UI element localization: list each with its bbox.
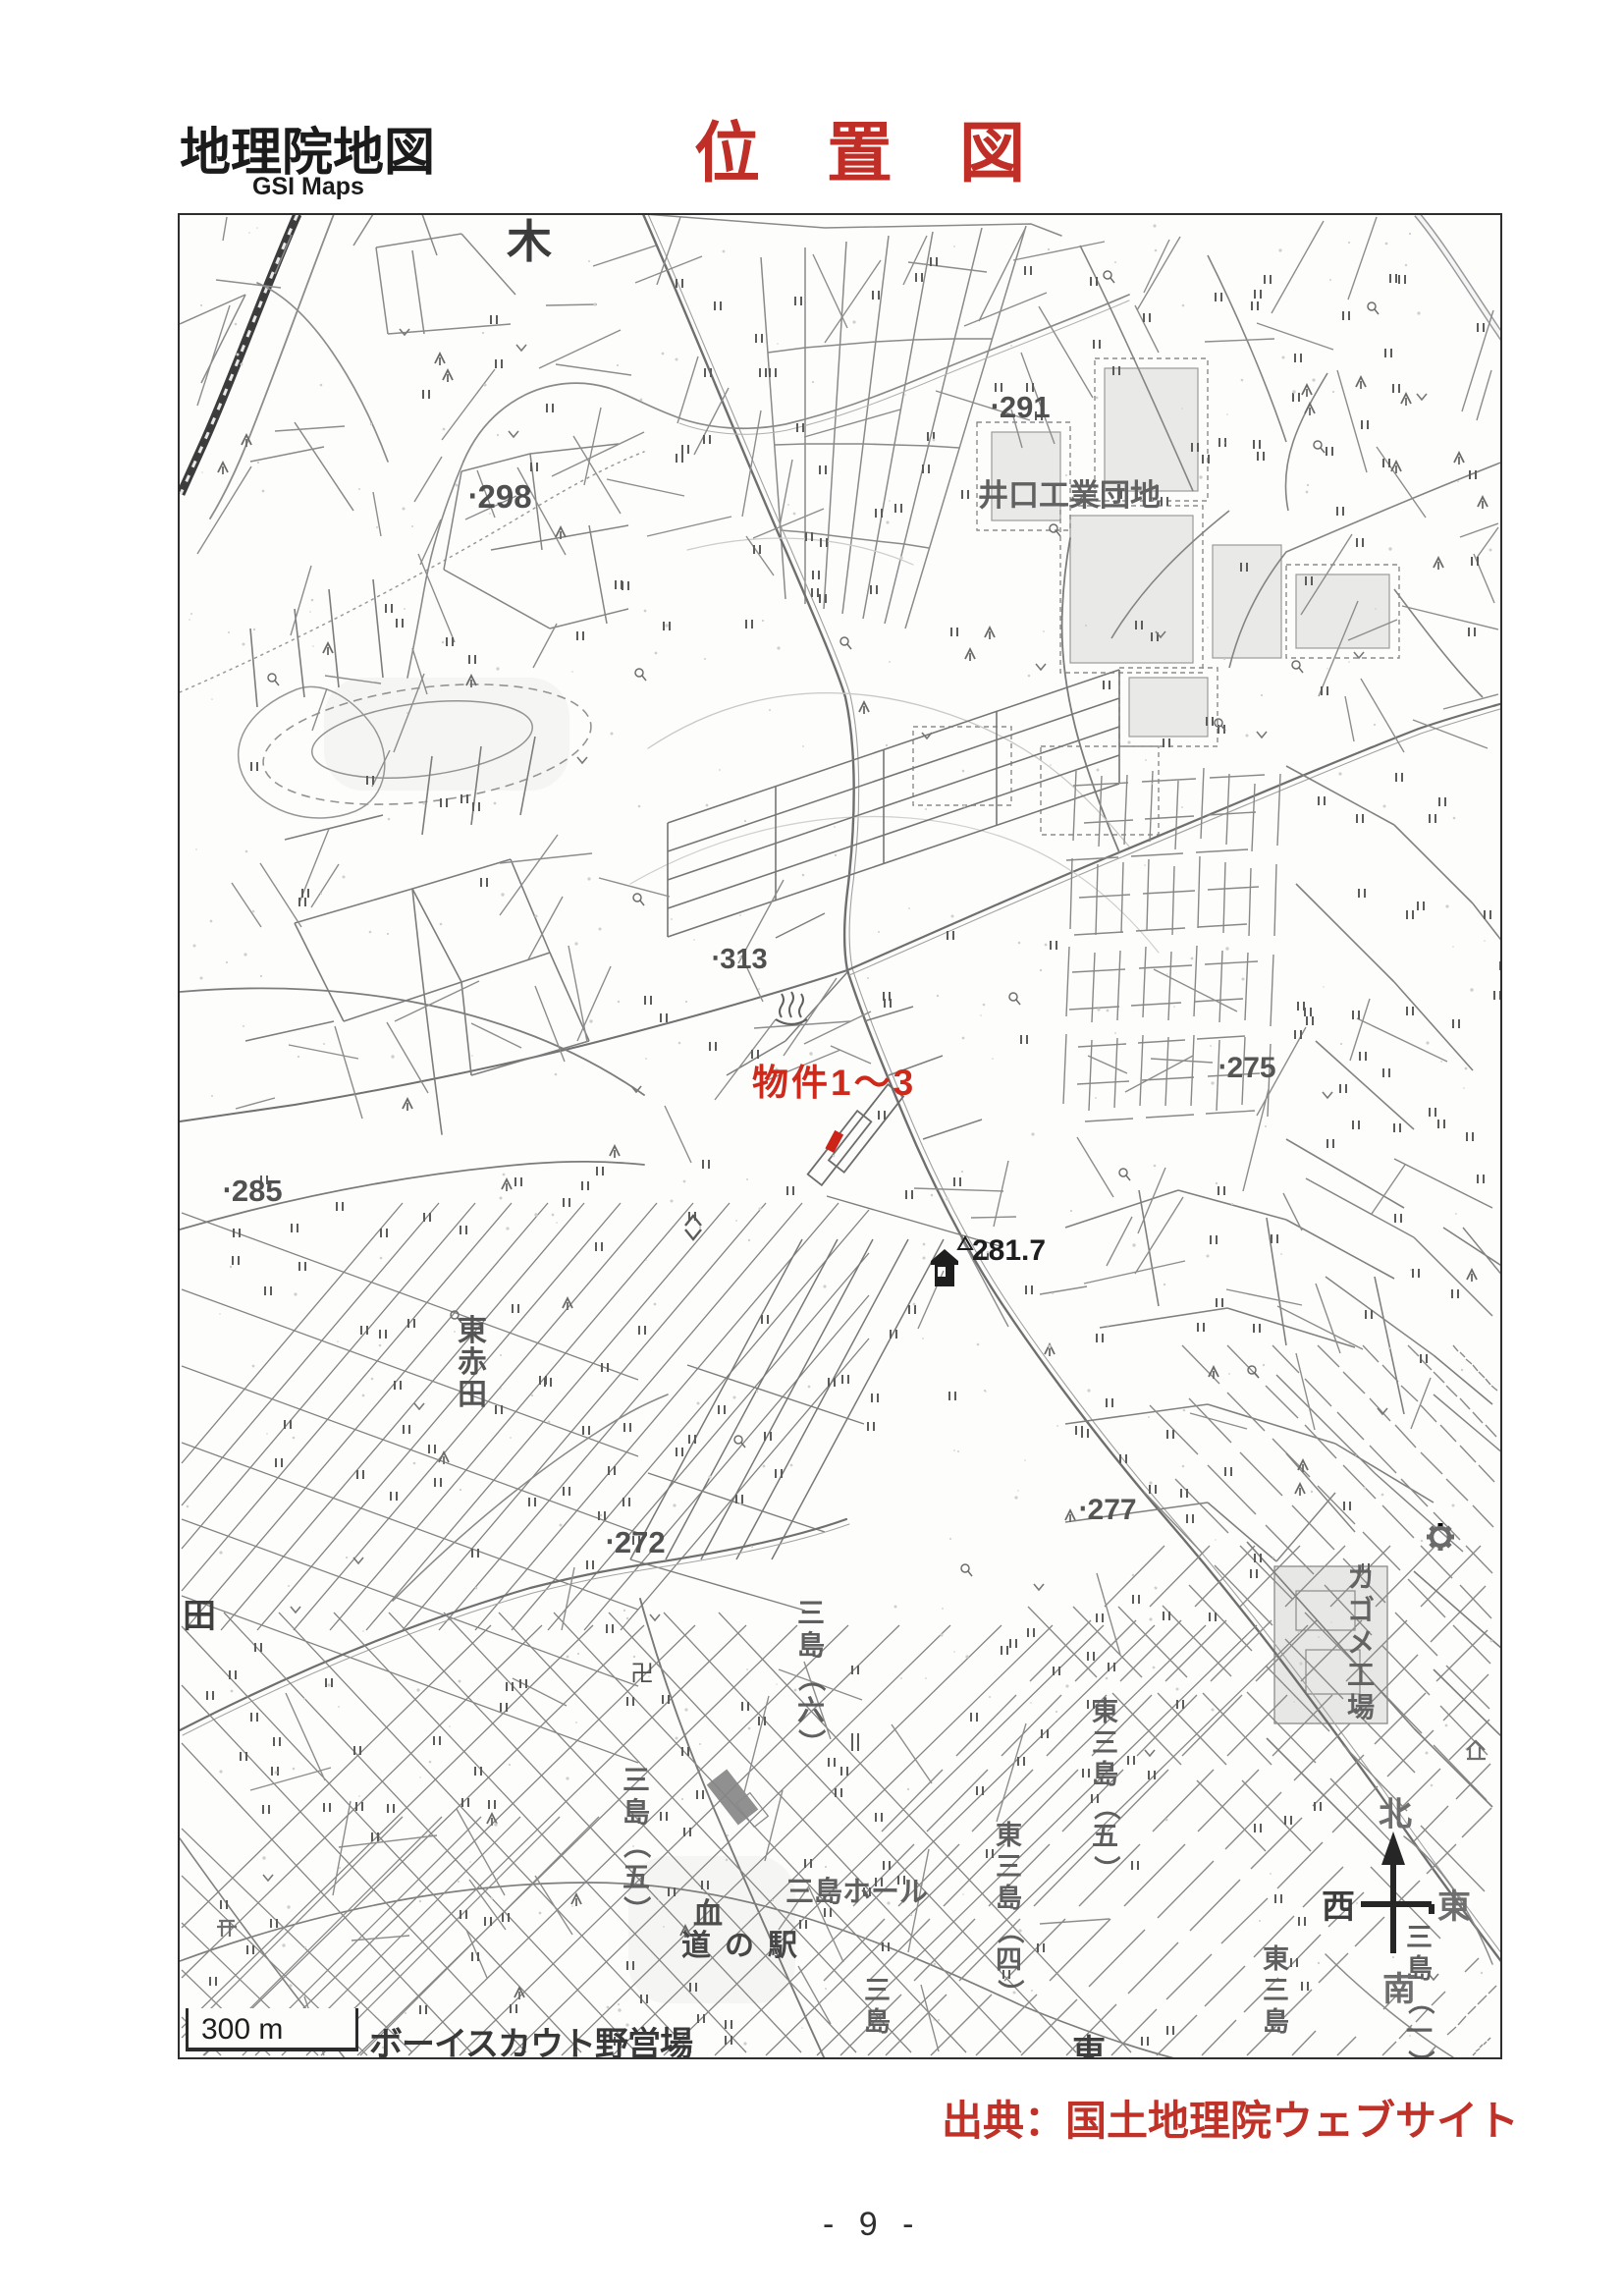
svg-text:卍: 卍	[630, 1661, 654, 1687]
